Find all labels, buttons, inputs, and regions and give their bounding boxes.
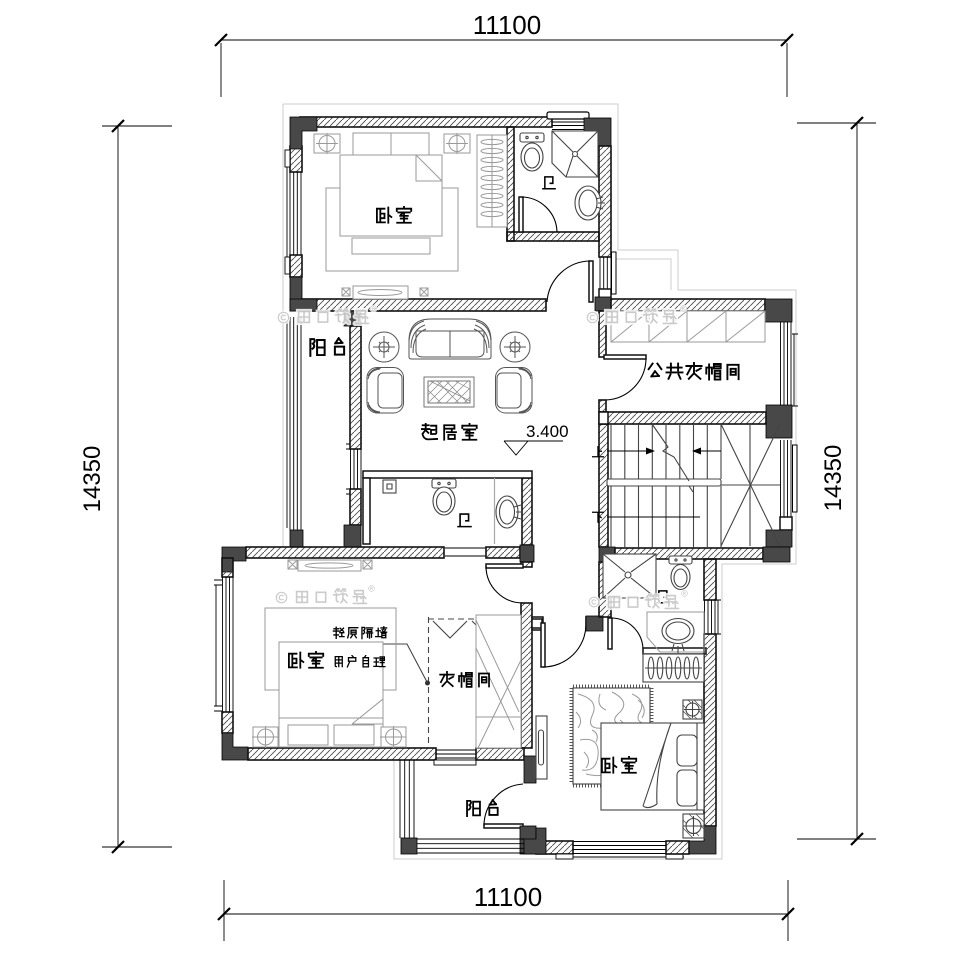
svg-text:3.400: 3.400 (526, 422, 569, 441)
svg-text:14350: 14350 (79, 446, 106, 513)
svg-text:14350: 14350 (820, 445, 847, 512)
svg-text:11100: 11100 (473, 10, 541, 40)
svg-text:11100: 11100 (474, 882, 542, 912)
